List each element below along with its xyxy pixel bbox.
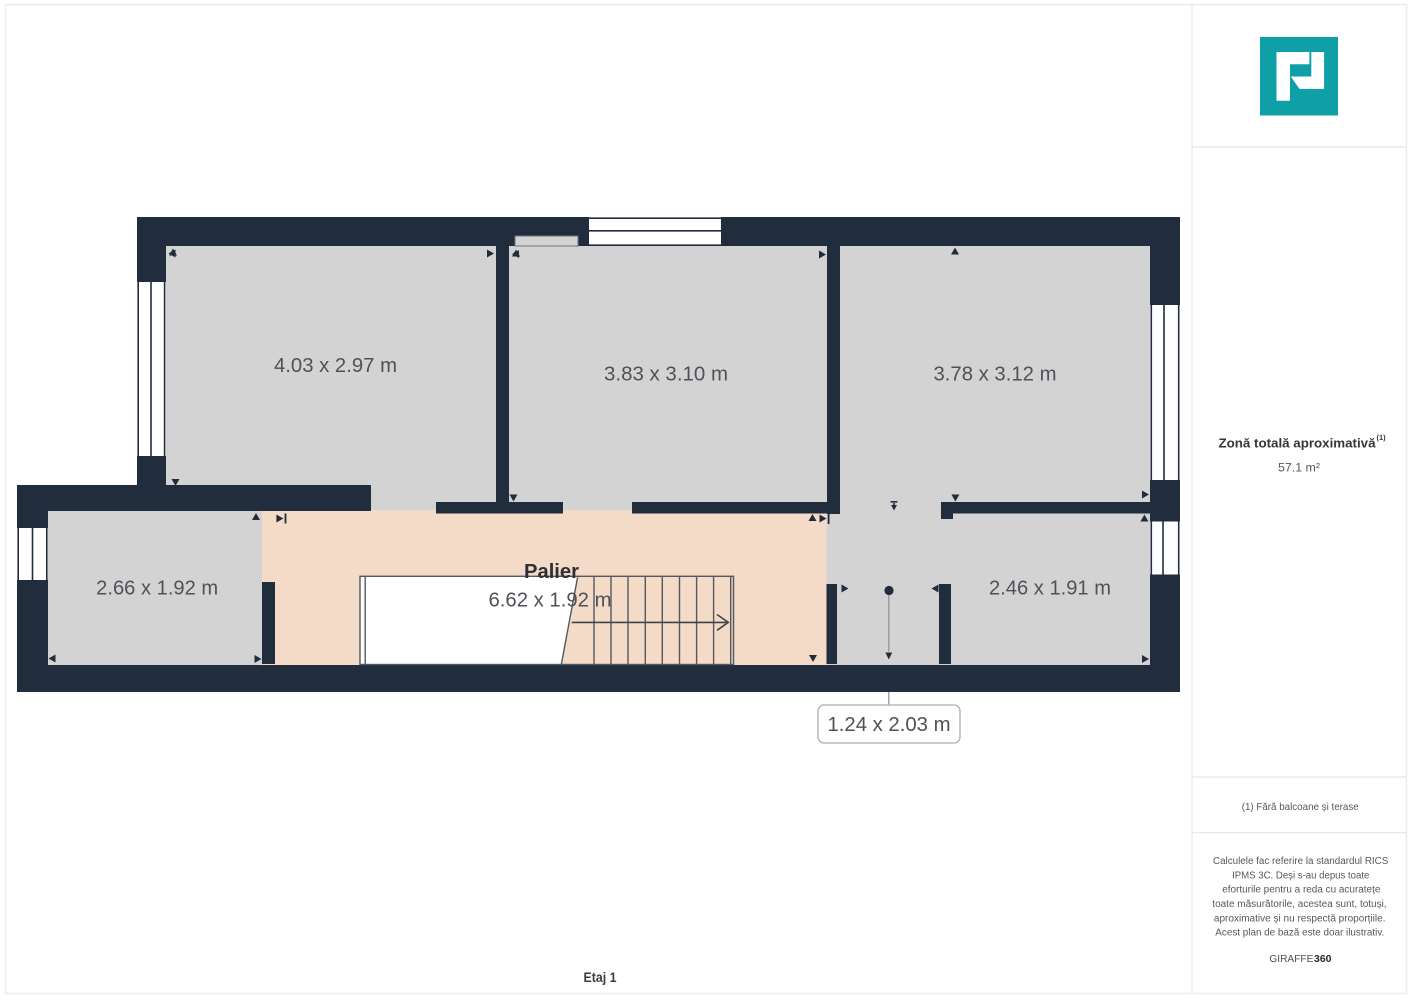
svg-text:3.83 x 3.10 m: 3.83 x 3.10 m: [604, 363, 728, 385]
svg-text:Calculele fac referire la stan: Calculele fac referire la standardul RIC…: [1213, 856, 1389, 867]
svg-text:GIRAFFE: GIRAFFE: [1269, 953, 1313, 965]
svg-text:(1): (1): [1377, 433, 1387, 442]
svg-text:4.03 x 2.97 m: 4.03 x 2.97 m: [274, 355, 397, 377]
svg-text:(1) Fără balcoane și terase: (1) Fără balcoane și terase: [1242, 801, 1359, 813]
svg-text:Palier: Palier: [524, 561, 579, 583]
svg-text:Acest plan de bază este doar i: Acest plan de bază este doar ilustrativ.: [1215, 928, 1384, 939]
svg-text:57.1 m²: 57.1 m²: [1278, 461, 1320, 475]
svg-text:360: 360: [1314, 953, 1332, 965]
svg-text:eforturile pentru a reda cu ac: eforturile pentru a reda cu acuratețe: [1222, 885, 1381, 896]
svg-text:2.46 x 1.91 m: 2.46 x 1.91 m: [989, 578, 1111, 600]
svg-text:2.66 x 1.92 m: 2.66 x 1.92 m: [96, 577, 218, 599]
svg-text:6.62 x 1.92 m: 6.62 x 1.92 m: [489, 590, 612, 612]
svg-text:Zonă totală aproximativă: Zonă totală aproximativă: [1219, 436, 1377, 451]
svg-text:3.78 x 3.12 m: 3.78 x 3.12 m: [934, 364, 1057, 386]
svg-text:1.24 x 2.03 m: 1.24 x 2.03 m: [828, 714, 951, 736]
svg-text:Etaj 1: Etaj 1: [584, 969, 617, 985]
svg-text:IPMS 3C. Deși s-au depus toate: IPMS 3C. Deși s-au depus toate: [1232, 870, 1370, 881]
svg-text:toate măsurătorile, acestea su: toate măsurătorile, acestea sunt, totuși…: [1212, 899, 1386, 910]
svg-text:aproximative și nu respectă pr: aproximative și nu respectă proporțiile.: [1214, 914, 1386, 925]
